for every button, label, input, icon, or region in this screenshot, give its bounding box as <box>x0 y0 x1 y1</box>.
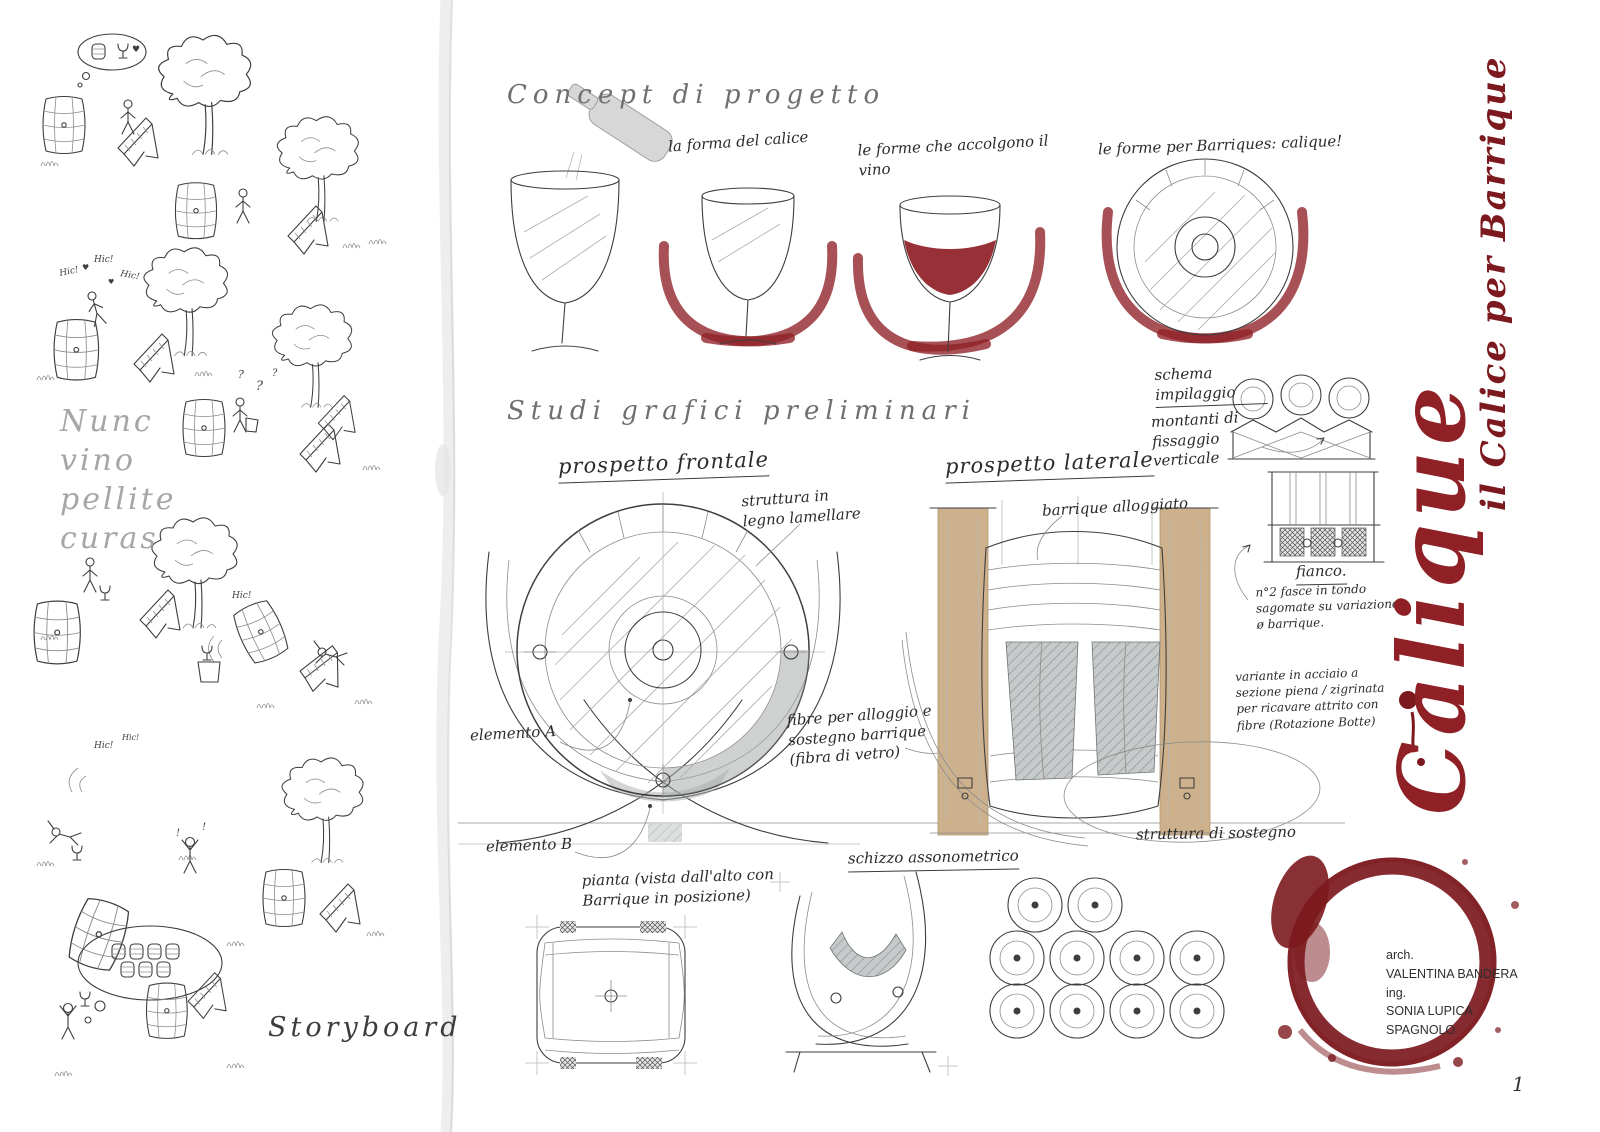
plan-sketch <box>525 915 697 1075</box>
sketch-canvas: ♥ Hic! Hic! Hic! ♥ ♥ ? <box>0 0 1600 1132</box>
design-board: ♥ Hic! Hic! Hic! ♥ ♥ ? <box>0 0 1600 1132</box>
heart-mark: ♥ <box>108 278 114 286</box>
glass-with-wine-sketch <box>858 196 1040 360</box>
quote-line: Nunc <box>60 402 177 441</box>
hic-mark: Hic! <box>118 269 140 282</box>
question-mark: ? <box>256 379 264 394</box>
hic-mark: Hic! <box>58 265 80 279</box>
quote-line: pellite <box>60 480 177 519</box>
page-number: 1 <box>1512 1072 1525 1096</box>
front-view-sketch <box>486 492 956 858</box>
engineer-name: SONIA LUPICA SPAGNOLO <box>1386 1002 1521 1040</box>
storyboard-scene-8: ! ! <box>176 758 384 946</box>
storyboard-scene-7: Hic! Hic! <box>37 733 196 974</box>
annotation-axonometric: schizzo assonometrico <box>848 847 1019 872</box>
architect-name: VALENTINA BANDERA <box>1386 965 1521 984</box>
brand-title: Calique <box>1378 360 1486 815</box>
storyboard-scene-3: Hic! Hic! Hic! ♥ ♥ <box>37 248 228 382</box>
glass-with-bottle-sketch <box>511 74 677 351</box>
exclaim-mark: ! <box>176 828 180 839</box>
storyboard-scene-4: ? ? ? <box>183 305 380 472</box>
exclaim-mark: ! <box>202 822 206 833</box>
quote-line: curas <box>60 519 177 558</box>
credits-block: arch. VALENTINA BANDERA ing. SONIA LUPIC… <box>1386 946 1521 1040</box>
annotation-stack-scheme: schema impilaggio <box>1154 362 1267 408</box>
barrel-face-red-arcs-sketch <box>1107 159 1304 338</box>
hic-mark: Hic! <box>93 741 114 751</box>
hic-mark: Hic! <box>231 591 252 601</box>
storyboard-scene-1: ♥ <box>41 34 251 166</box>
arch-label: arch. <box>1386 946 1521 965</box>
concept-sketches <box>511 74 1303 360</box>
storyboard-label: Storyboard <box>268 1012 462 1043</box>
annotation-plan: pianta (vista dall'alto con Barrique in … <box>581 864 797 910</box>
hic-mark: Hic! <box>93 255 114 265</box>
brand-subtitle: il Calice per Barrique <box>1474 76 1514 511</box>
axonometric-sketch <box>770 872 958 1076</box>
studies-heading: Studi grafici preliminari <box>507 396 976 426</box>
stacking-grid-sketch <box>990 878 1224 1038</box>
glass-with-red-arcs-sketch <box>664 188 832 344</box>
storyboard-scene-2 <box>175 117 386 254</box>
question-mark: ? <box>238 368 244 381</box>
quote-line: vino <box>60 441 177 480</box>
storyboard-scene-9 <box>55 926 244 1076</box>
hic-mark: Hic! <box>121 733 139 742</box>
annotation-uprights: montanti di fissaggio verticale <box>1151 407 1266 471</box>
heart-mark: ♥ <box>132 45 140 55</box>
annotation-fibers: fibre per alloggio e sostegno barrique (… <box>786 701 945 770</box>
watercolor-streak <box>435 0 454 1132</box>
storyboard-scene-6: Hic! <box>198 591 372 708</box>
annotation-support: struttura di sostegno <box>1136 823 1306 845</box>
concept-heading: Concept di progetto <box>507 80 885 110</box>
latin-quote: Nunc vino pellite curas <box>60 402 177 558</box>
heart-mark: ♥ <box>82 263 89 272</box>
question-mark: ? <box>272 368 278 379</box>
ing-label: ing. <box>1386 984 1521 1003</box>
annotation-element-b: elemento B <box>486 834 582 857</box>
